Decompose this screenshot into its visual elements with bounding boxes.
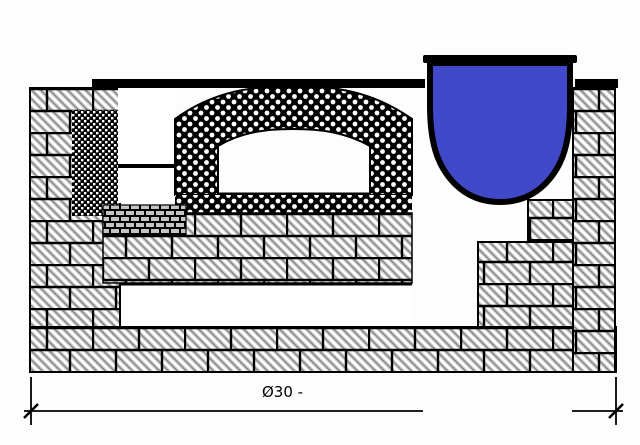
crucible-rim — [423, 55, 577, 63]
left-wall-refractory-lining — [72, 110, 118, 216]
bottom-floor — [30, 327, 616, 372]
refractory-arch — [175, 86, 412, 195]
stepped-brickwork — [478, 200, 573, 327]
hearth-refractory-course — [175, 195, 412, 215]
small-brick-course — [103, 205, 186, 235]
hearth-masonry — [103, 195, 412, 283]
dimension — [24, 377, 623, 425]
dimension-label: Ø30 - — [262, 383, 303, 401]
right-wall — [573, 88, 615, 372]
flue-ledge — [118, 164, 175, 168]
diagram-canvas: Ø30 - — [0, 0, 640, 445]
cover-plate-right — [575, 79, 618, 88]
furnace-cross-section-figure: Ø30 - — [0, 0, 640, 445]
left-flue-channel — [118, 88, 175, 203]
lower-flue-channel — [119, 283, 412, 327]
crucible-body — [430, 63, 570, 202]
crucible-vessel — [423, 55, 577, 202]
cover-plate-left — [92, 79, 425, 88]
chamber-floor-line — [218, 193, 370, 196]
